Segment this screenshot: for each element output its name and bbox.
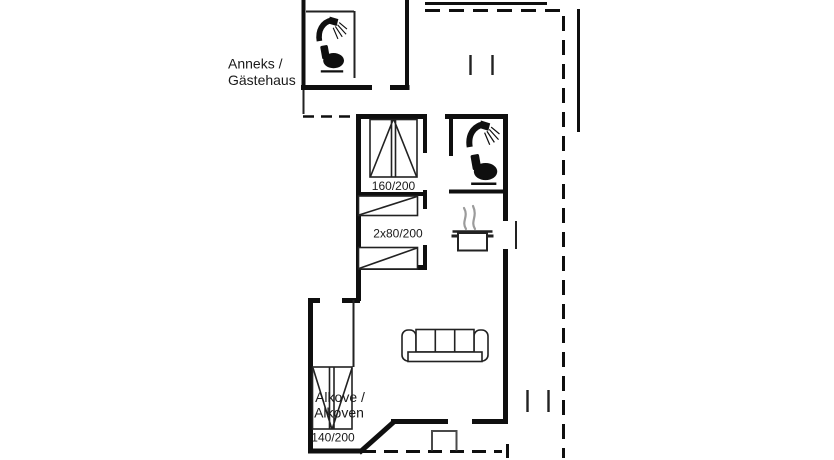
shower-icon (469, 121, 499, 148)
toilet-icon (470, 154, 497, 184)
steam-lines (464, 206, 475, 229)
alcove-bed-size-label: 140/200 (311, 431, 355, 445)
terrace-marks-bottom (528, 390, 549, 412)
alcove-label-line2: Alkoven (314, 405, 364, 421)
double-bed-size-label: 160/200 (372, 179, 416, 193)
single-bed-top (359, 196, 418, 216)
anneks-connector (303, 90, 356, 117)
bunk-beds-size-label: 2x80/200 (373, 227, 423, 241)
sofa-back (416, 330, 474, 353)
diagonal-wall (359, 422, 394, 453)
sofa (402, 330, 488, 362)
entrance-step (432, 431, 457, 451)
floor-plan-page: Anneks / Gästehaus 160/200 2x80/ (0, 0, 834, 460)
terrace-dashed-boundary (425, 11, 564, 459)
pot-body (458, 233, 487, 251)
alcove-label-line1: Alkove / (315, 389, 365, 405)
terrace-marks-top (471, 55, 493, 75)
floor-plan-svg: Anneks / Gästehaus 160/200 2x80/ (0, 0, 834, 460)
anneks-label-line1: Anneks / (228, 56, 283, 72)
main-bathroom (469, 121, 499, 184)
toilet-icon (320, 45, 344, 72)
double-bed (370, 120, 417, 178)
shower-icon (319, 17, 347, 42)
sofa-seat (408, 352, 482, 362)
anneks-building (301, 0, 410, 90)
anneks-label-line2: Gästehaus (228, 72, 296, 88)
double-bed-outline (370, 120, 417, 178)
single-bed-bottom (359, 248, 418, 270)
cooking-pot (452, 206, 494, 251)
